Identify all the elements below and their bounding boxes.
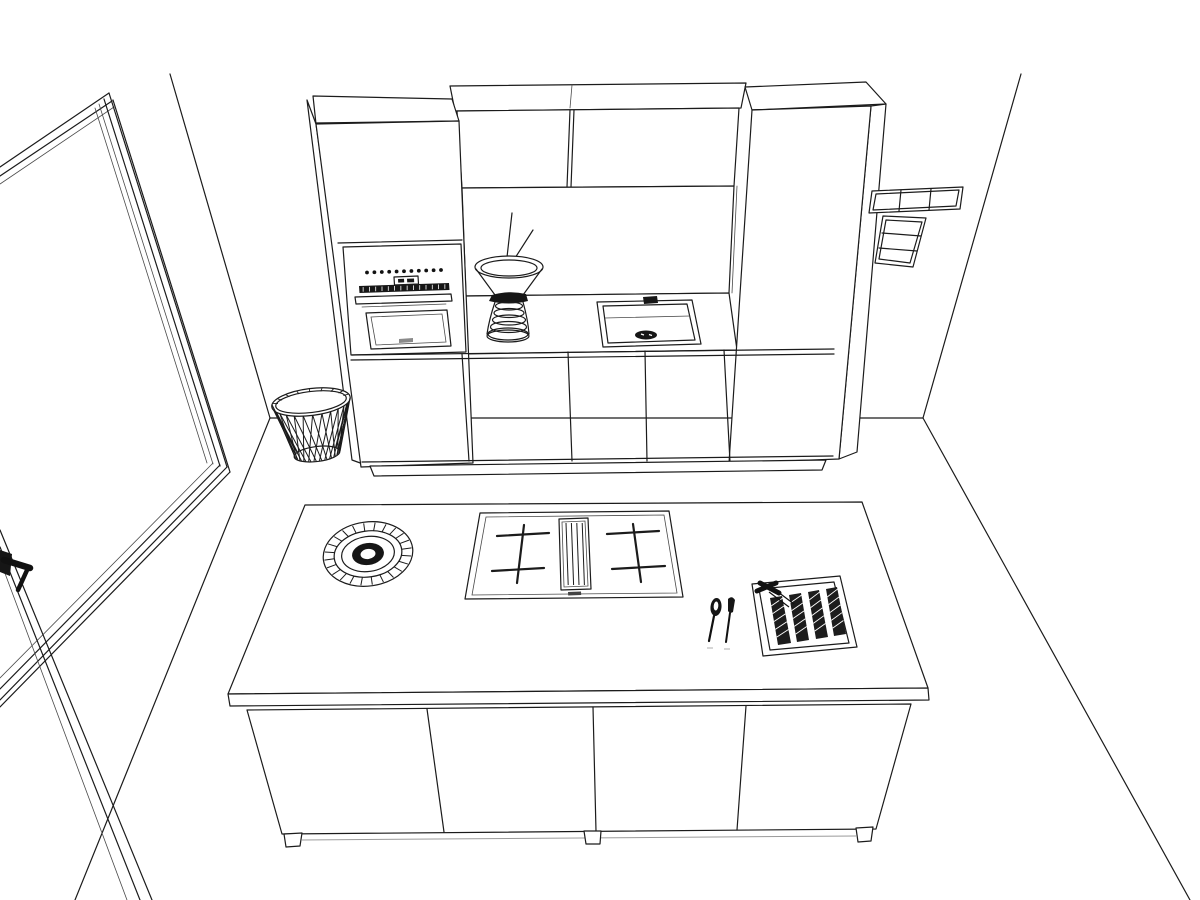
upper-cabinet-top-face — [450, 83, 746, 111]
oven — [343, 244, 466, 355]
sink-tap-fitting — [643, 296, 658, 304]
oven-door-glass — [366, 310, 451, 349]
sink — [597, 296, 701, 347]
upper-cabinet-doors — [457, 108, 739, 188]
kitchen-line-drawing — [0, 0, 1200, 900]
glazed-door — [0, 93, 230, 900]
right-wall-corner-line — [923, 74, 1021, 418]
door-jamb — [109, 93, 227, 467]
left-wall-corner-line — [170, 74, 270, 418]
oven-display — [394, 276, 419, 285]
cooktop — [465, 511, 683, 599]
left-floor-line — [75, 418, 270, 900]
knife-tray — [752, 576, 857, 656]
downdraft-vent — [559, 518, 591, 590]
cooktop-logo-mark — [568, 592, 581, 596]
island-doors — [247, 704, 911, 834]
right-floor-line — [923, 418, 1190, 900]
upper-cabinets — [450, 83, 746, 191]
door-sill — [0, 472, 230, 707]
tall-left-top-face — [313, 96, 459, 124]
cabinet-wall — [307, 82, 886, 476]
wastebasket — [270, 384, 352, 464]
niche-back-panel — [462, 186, 734, 296]
sink-drain — [635, 331, 657, 340]
kitchen-render: Kitchen 3D line-art rendering — [0, 0, 1200, 900]
tall-cabinet-right — [729, 82, 886, 463]
island — [228, 502, 929, 847]
light-switches — [869, 187, 963, 267]
